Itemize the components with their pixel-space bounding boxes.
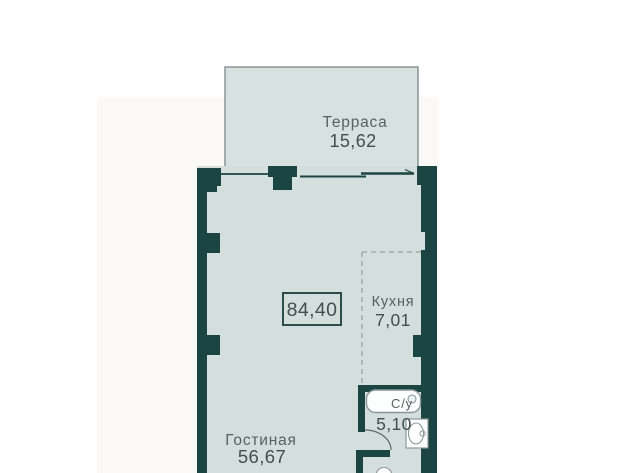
wall-segment: [197, 192, 207, 473]
bathroom-wall: [356, 457, 363, 473]
wall-pillar: [268, 166, 297, 177]
wall-segment: [425, 232, 437, 250]
kitchen-label: Кухня: [372, 294, 415, 310]
wall-segment: [421, 357, 437, 473]
living-room-area: 56,67: [238, 446, 286, 467]
terrace-label: Терраса: [322, 114, 387, 131]
wall-segment: [197, 168, 221, 186]
kitchen-area: 7,01: [375, 310, 411, 330]
wall-segment: [197, 186, 217, 192]
total-area-value: 84,40: [287, 299, 338, 321]
terrace-area: 15,62: [329, 131, 376, 151]
wall-pillar: [207, 233, 220, 253]
bathroom-area: 5,10: [376, 414, 412, 434]
wall-pillar: [273, 177, 292, 190]
floor-plan-svg: Терраса Кухня С/у Гостиная 15,62 7,01 5,…: [0, 0, 640, 473]
bathroom-label: С/у: [391, 396, 413, 411]
wall-pillar: [413, 335, 437, 357]
bathroom-wall: [358, 392, 365, 432]
wall-segment: [421, 250, 437, 335]
floor-plan-page: Терраса Кухня С/у Гостиная 15,62 7,01 5,…: [0, 0, 640, 473]
wall-pillar: [207, 335, 220, 355]
wall-segment: [417, 166, 437, 185]
wall-segment: [421, 185, 437, 232]
bathroom-wall: [356, 450, 390, 457]
